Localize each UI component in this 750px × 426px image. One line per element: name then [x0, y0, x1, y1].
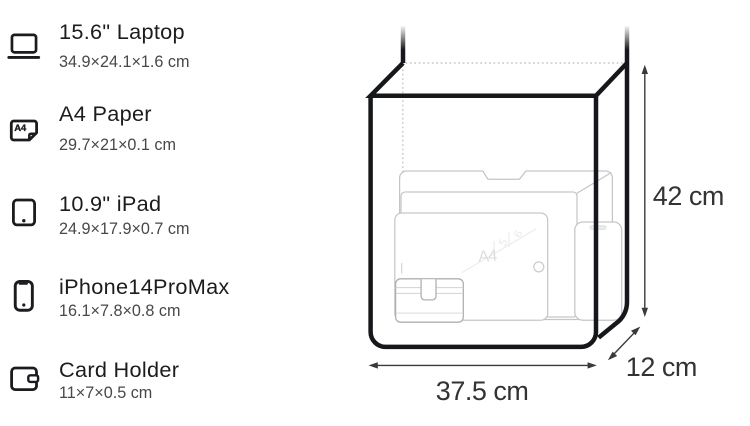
svg-text:A4: A4 [477, 247, 497, 266]
svg-text:37.5 cm: 37.5 cm [436, 376, 529, 406]
svg-text:A4: A4 [14, 123, 27, 134]
svg-text:12 cm: 12 cm [626, 352, 697, 382]
svg-text:42 cm: 42 cm [653, 181, 724, 211]
